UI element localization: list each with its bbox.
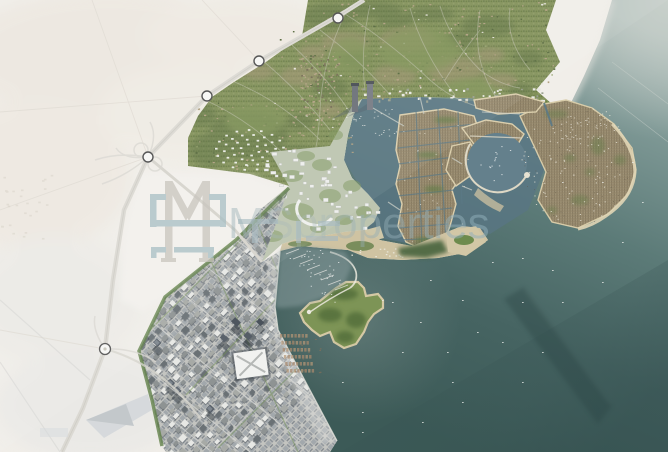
svg-text:MSproperties: MSproperties <box>228 199 490 248</box>
